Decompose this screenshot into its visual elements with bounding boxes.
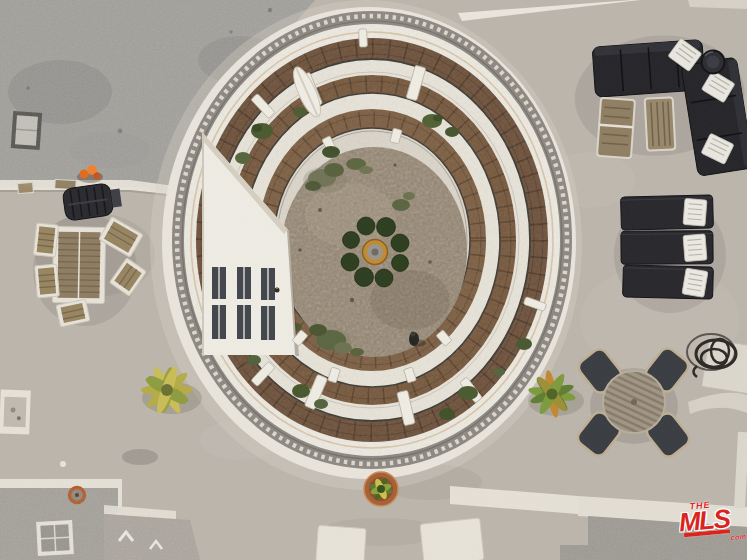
photo-grain [0,0,747,560]
aerial-photo-canvas [0,0,747,560]
aerial-photo: THE MLS .com [0,0,747,560]
